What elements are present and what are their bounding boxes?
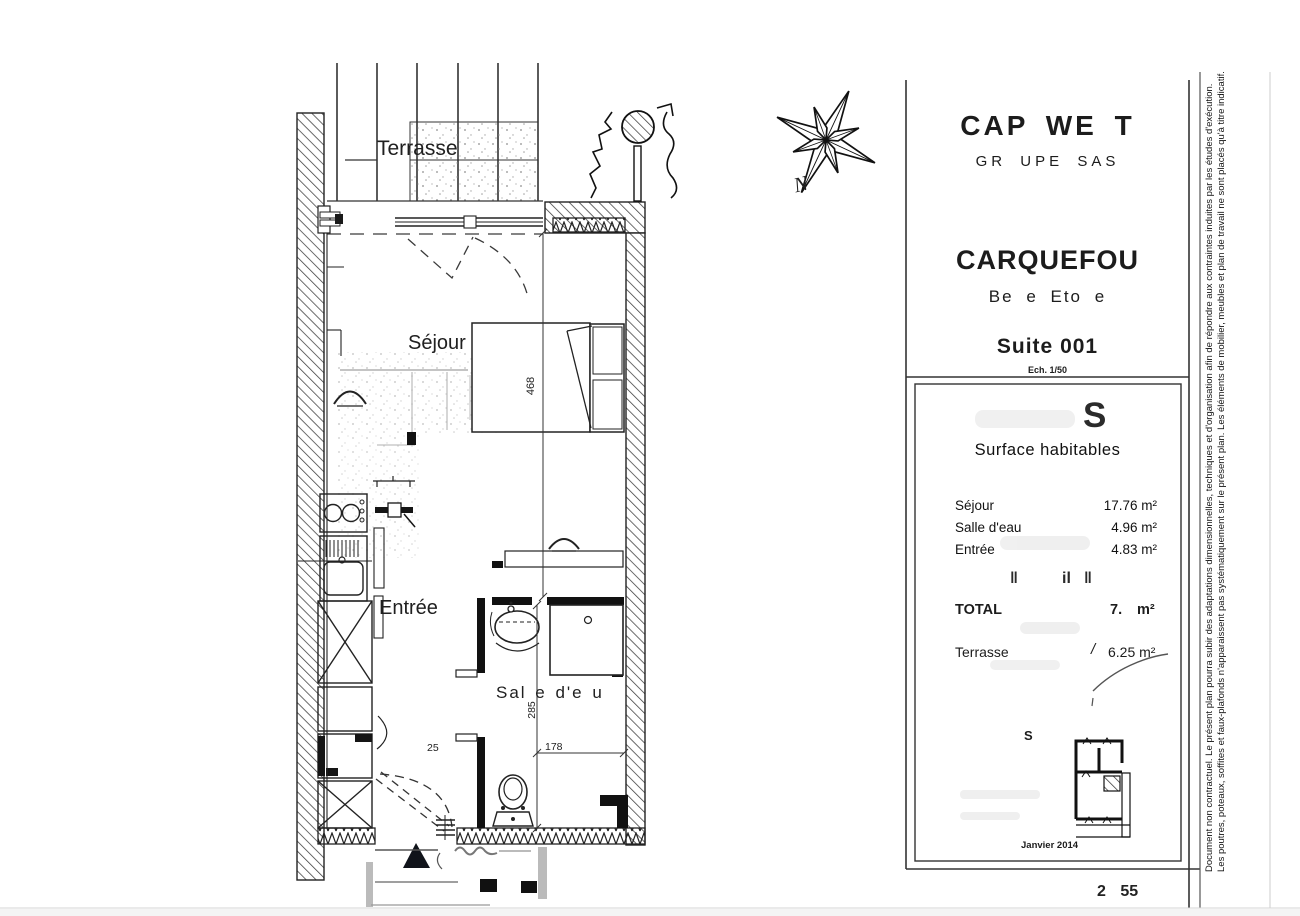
surface-row-label: Séjour: [955, 498, 994, 513]
surface-row-value: 4.83 m²: [1085, 542, 1157, 557]
entry-door-swing: [376, 772, 452, 831]
terrace-row-prefix: /: [1091, 641, 1095, 658]
desk: [505, 551, 623, 567]
surface-row-value: 4.96 m²: [1085, 520, 1157, 535]
entry-arrow: [403, 843, 430, 868]
dimension-bath-width: 178: [545, 741, 563, 753]
window-door-swings: [327, 234, 543, 297]
surface-row-label: Salle d'eau: [955, 520, 1021, 535]
terrace-row-label: Terrasse: [955, 644, 1009, 660]
faded-mark: ‖: [1010, 570, 1018, 588]
compass-rose: [753, 68, 898, 215]
toilet: [493, 775, 533, 826]
terrace-window: [318, 206, 543, 233]
disclaimer-line-1: Document non contractuel. Le présent pla…: [1204, 74, 1216, 872]
room-label-salle-deau: Sal e d'e u: [496, 683, 604, 703]
dimension-bath-height: 285: [526, 701, 538, 719]
project-name: CARQUEFOU: [906, 245, 1189, 276]
legal-disclaimer: Document non contractuel. Le présent pla…: [1204, 74, 1227, 872]
surface-table-heading: Surface habitables: [906, 441, 1189, 460]
disclaimer-line-2: Les poutres, poteaux, soffites et faux-p…: [1216, 74, 1228, 872]
room-label-sejour: Séjour: [408, 332, 466, 355]
ghost-letter: S: [1083, 396, 1106, 436]
corridor-sketch: [366, 847, 547, 907]
surface-row-label: Entrée: [955, 542, 995, 557]
dimension-door: 25: [427, 742, 439, 754]
shower: [550, 605, 623, 675]
appliance-marks: [318, 734, 372, 776]
company-subtitle: GR UPE SAS: [906, 153, 1189, 170]
bottom-number: 2 55: [1097, 883, 1138, 901]
stray-pen-mark: [1092, 654, 1168, 706]
room-label-terrasse: Terrasse: [377, 137, 458, 161]
washbasin: [490, 602, 539, 652]
dimension-sejour-height: 468: [525, 377, 537, 395]
terrace-row-value: 6.25 m²: [1108, 644, 1155, 660]
bathroom-door-jambs: [456, 670, 477, 741]
room-label-entree: Entrée: [379, 597, 438, 620]
bed: [472, 323, 624, 432]
suite-number: Suite 001: [906, 335, 1189, 359]
keyplan-label: S: [1024, 728, 1033, 743]
surface-row-value: 17.76 m²: [1085, 498, 1157, 513]
total-label: TOTAL: [955, 602, 1002, 618]
total-unit: m²: [1137, 602, 1155, 618]
entry-closets: [318, 601, 387, 828]
company-name: CAP WE T: [906, 110, 1189, 142]
project-subtitle: Be e Eto e: [906, 287, 1189, 307]
faded-mark: il: [1062, 570, 1071, 588]
faded-mark: ‖: [1084, 570, 1092, 588]
drawing-scale: Ech. 1/50: [906, 365, 1189, 375]
key-plan: [1076, 738, 1130, 837]
lamp-post-icon: [622, 111, 654, 201]
total-value: 7.: [1110, 602, 1122, 618]
scanned-floorplan-page: Terrasse Séjour Entrée Sal e d'e u 468 2…: [0, 0, 1300, 916]
terrace-tiles: [327, 122, 543, 201]
drawing-date: Janvier 2014: [1021, 840, 1078, 851]
